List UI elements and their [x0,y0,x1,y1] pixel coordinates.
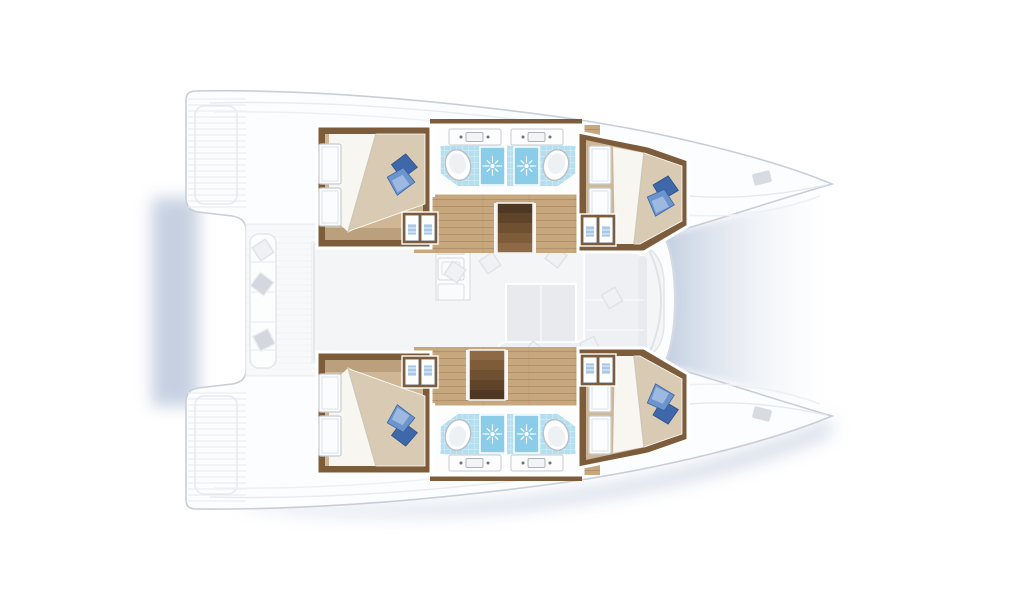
companionway-stairs-top [494,203,536,253]
shower-icon [514,147,539,185]
companionway-stairs-bottom [466,350,508,400]
washbasin-icon [449,129,501,145]
wardrobe-icon [402,212,438,244]
aft-cabin [317,126,438,248]
galley-locker [438,284,464,300]
settee-backrest [638,256,647,354]
bathroom-wall-left [431,125,435,197]
aft-cockpit [246,224,317,376]
shower-icon [480,147,505,185]
wardrobe-icon [580,214,616,246]
bathrooms [431,125,583,197]
catamaran-floor-plan [0,0,1024,600]
floor-plan-canvas [0,0,1024,600]
door-panels [589,146,611,222]
stern-gap-shadow [152,198,198,406]
washbasin-icon [511,129,563,145]
